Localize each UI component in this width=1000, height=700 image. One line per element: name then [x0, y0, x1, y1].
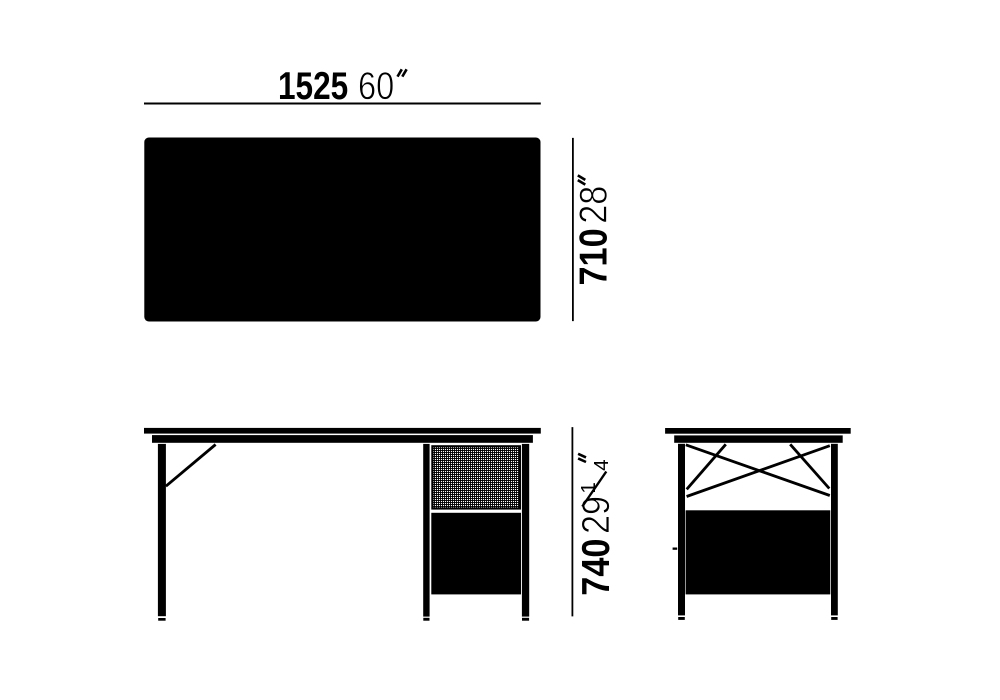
- svg-text:60: 60: [358, 64, 394, 107]
- svg-text:4: 4: [590, 459, 613, 470]
- svg-text:740: 740: [574, 539, 617, 596]
- svg-text:29: 29: [574, 496, 617, 534]
- svg-text:1525: 1525: [278, 65, 348, 108]
- svg-text:28: 28: [572, 186, 615, 224]
- svg-text:710: 710: [572, 228, 615, 285]
